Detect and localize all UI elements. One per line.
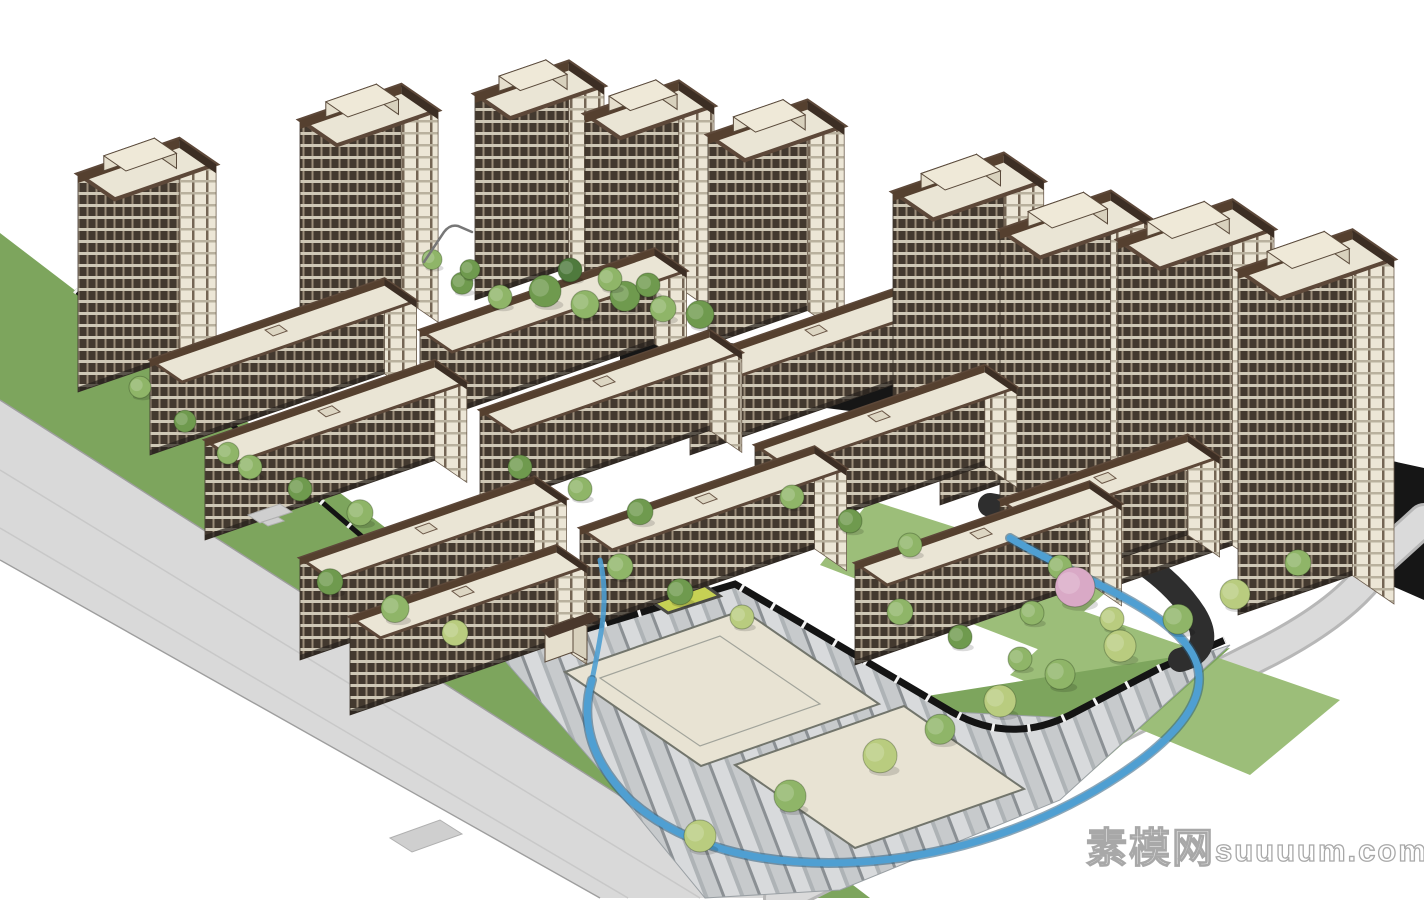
watermark-text: 素模网suuuum.com: [1086, 825, 1424, 871]
tree: [1008, 647, 1034, 673]
highrise-tower: [708, 100, 844, 345]
watermark-latin: suuuum.com: [1215, 833, 1424, 868]
curbside-pad: [390, 820, 462, 852]
tree: [568, 477, 594, 503]
architectural-rendering: 素模网suuuum.com: [0, 0, 1424, 900]
watermark-cjk: 素模网: [1086, 825, 1215, 871]
highrise-tower: [1238, 230, 1394, 615]
tree: [948, 625, 974, 651]
scene-svg: 素模网suuuum.com: [0, 0, 1424, 900]
